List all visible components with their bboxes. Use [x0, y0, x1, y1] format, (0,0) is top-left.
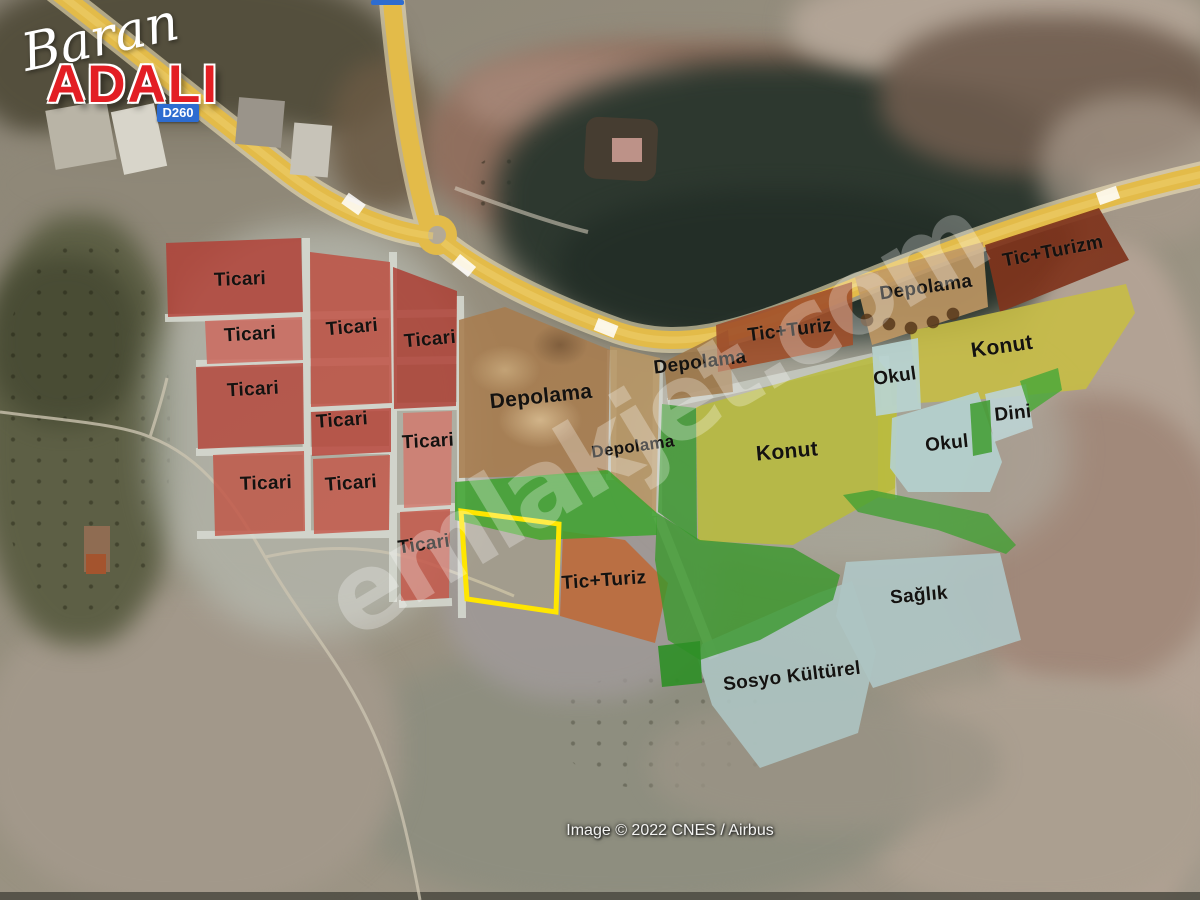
road-sign-d260: D260	[157, 104, 199, 122]
road-sign-partial	[371, 0, 404, 5]
brand-logo: Baran ADALI D260	[15, 8, 265, 138]
imagery-attribution: Image © 2022 CNES / Airbus	[566, 822, 773, 840]
satellite-zoning-map: Ticari Ticari Ticari Ticari Ticari Ticar…	[0, 0, 1200, 900]
parcel-outline-polygon	[461, 511, 559, 612]
